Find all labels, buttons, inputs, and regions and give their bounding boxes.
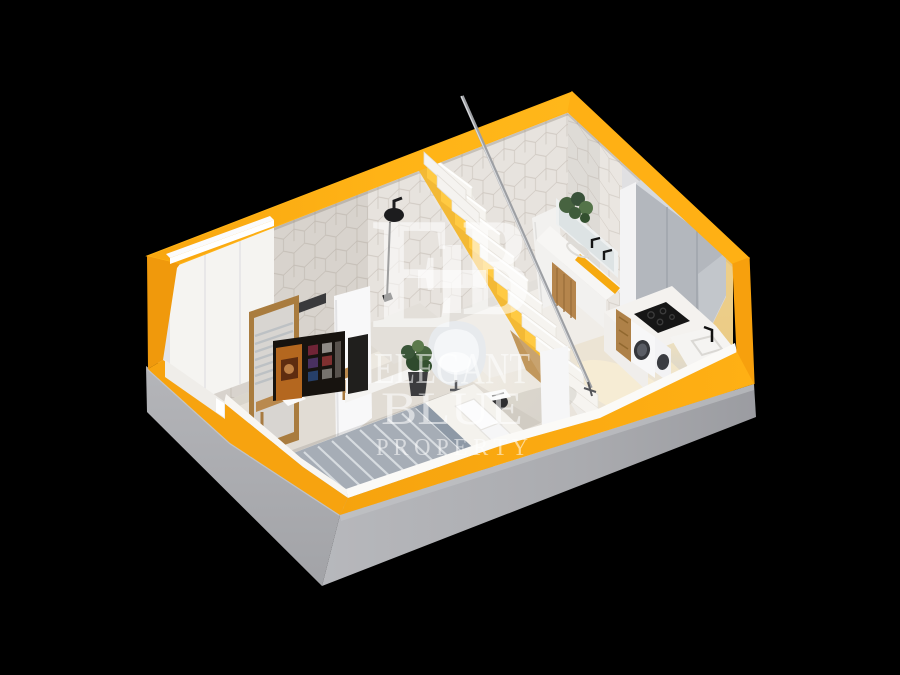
svg-text:P R O P E R T Y: P R O P E R T Y — [376, 435, 528, 461]
svg-text:B: B — [462, 190, 530, 345]
svg-text:BLUE: BLUE — [381, 383, 523, 435]
